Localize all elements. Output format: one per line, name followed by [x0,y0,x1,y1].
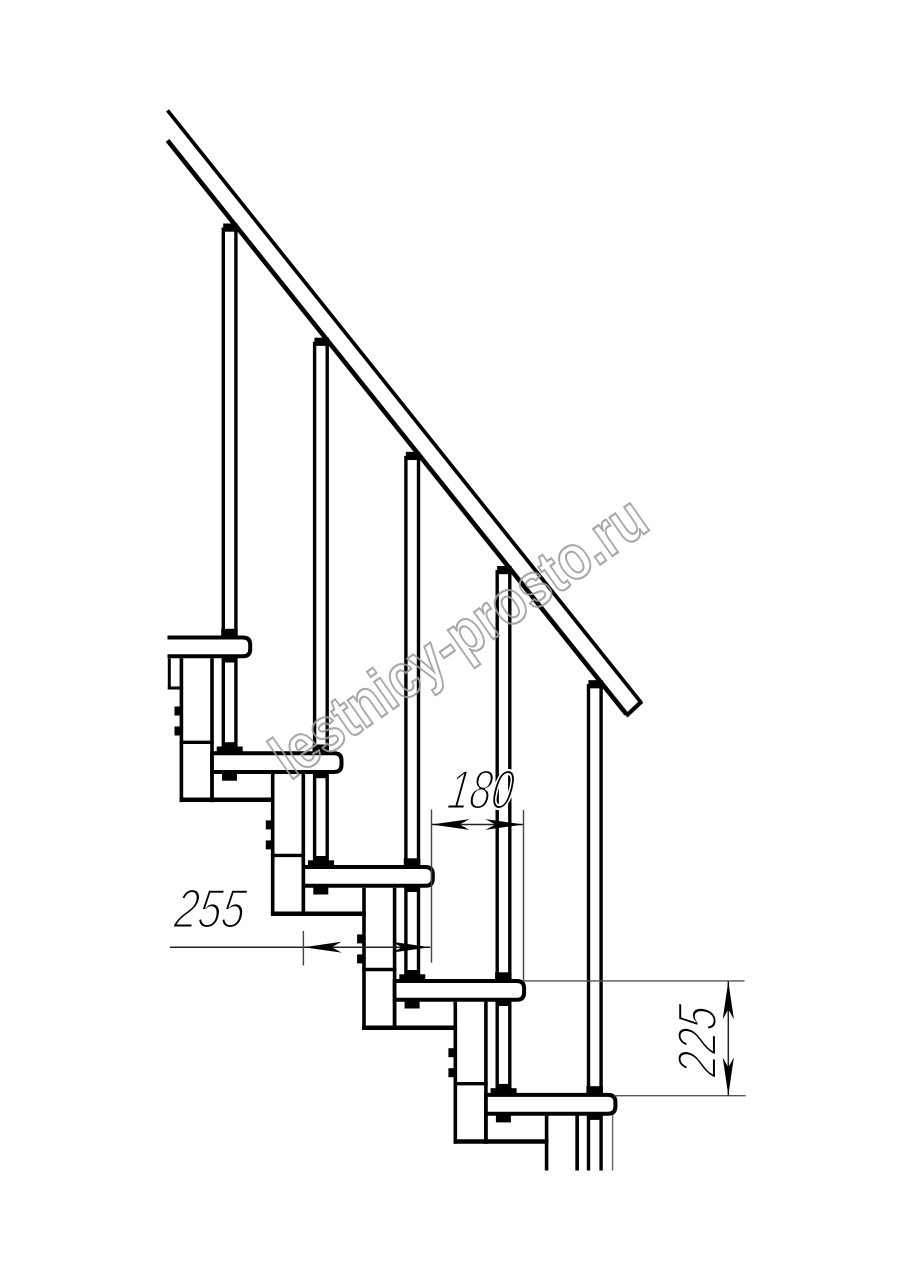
svg-text:180: 180 [444,760,518,821]
svg-text:255: 255 [170,879,250,939]
svg-text:225: 225 [668,1001,728,1081]
